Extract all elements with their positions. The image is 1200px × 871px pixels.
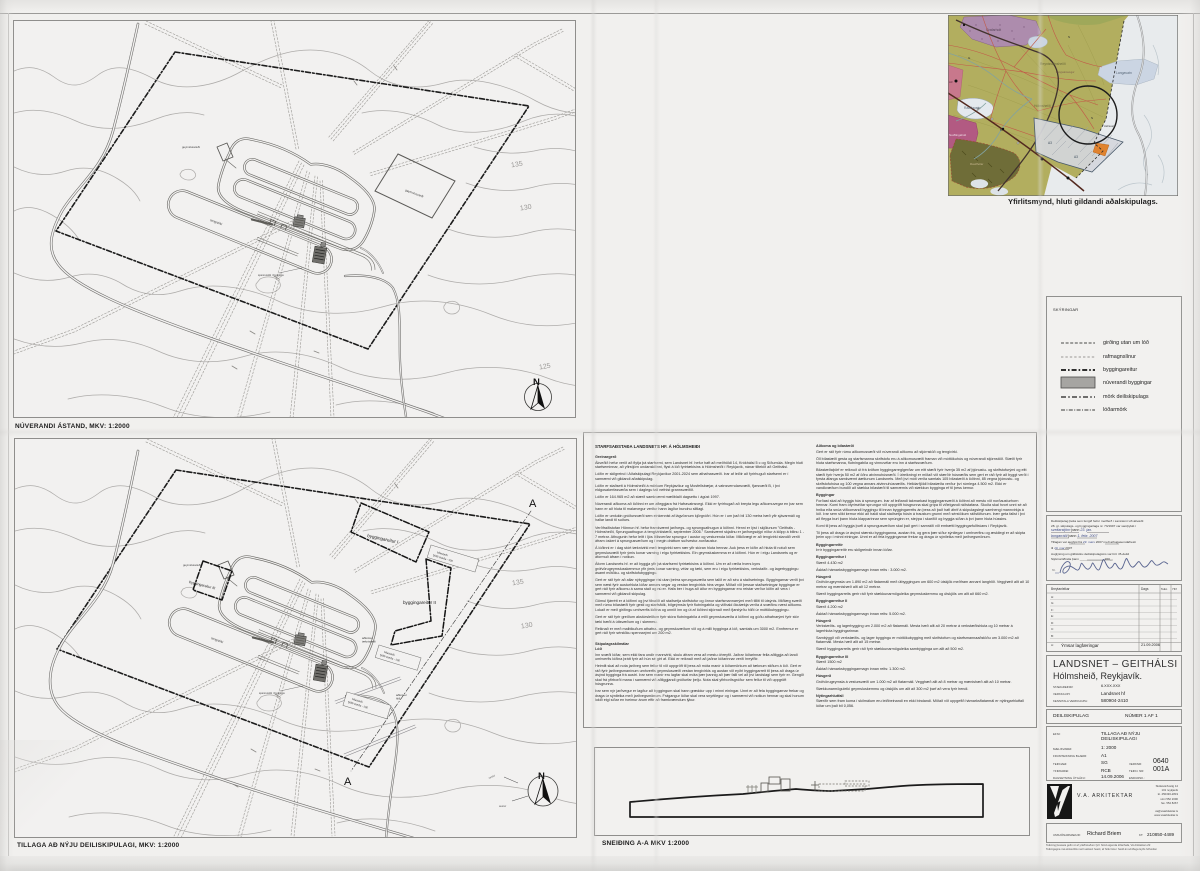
svg-text:Hafravatn: Hafravatn: [1104, 124, 1116, 128]
svg-text:Langvatnsvegur: Langvatnsvegur: [1056, 70, 1075, 74]
svg-text:A3: A3: [1048, 141, 1052, 145]
svg-text:N: N: [533, 377, 540, 388]
svg-text:Grafarholt: Grafarholt: [986, 28, 1001, 32]
svg-text:A3: A3: [949, 80, 953, 84]
svg-text:byggingareitur II: byggingareitur II: [403, 600, 436, 605]
svg-text:A3: A3: [1074, 155, 1078, 159]
svg-text:A: A: [344, 776, 352, 788]
svg-text:N: N: [538, 771, 545, 782]
svg-text:Rauðavatn: Rauðavatn: [964, 105, 981, 110]
svg-text:S: S: [1068, 35, 1070, 39]
svg-text:Langavatn: Langavatn: [1116, 71, 1132, 75]
svg-text:Norðlingaholt: Norðlingaholt: [949, 132, 966, 137]
svg-text:aðkoma /: aðkoma /: [396, 692, 407, 697]
svg-text:aðkoma /: aðkoma /: [362, 635, 373, 640]
svg-text:vestur: vestur: [488, 773, 496, 780]
svg-text:S: S: [1091, 116, 1093, 120]
svg-text:Reynisvatnsheiði: Reynisvatnsheiði: [1040, 61, 1066, 66]
svg-text:A: A: [529, 498, 537, 510]
svg-text:byggingareitur I: byggingareitur I: [367, 533, 399, 544]
svg-text:Hólmsheiði: Hólmsheiði: [1034, 103, 1051, 108]
svg-text:austur: austur: [499, 804, 506, 808]
svg-text:Rauðhólar: Rauðhólar: [970, 161, 983, 166]
